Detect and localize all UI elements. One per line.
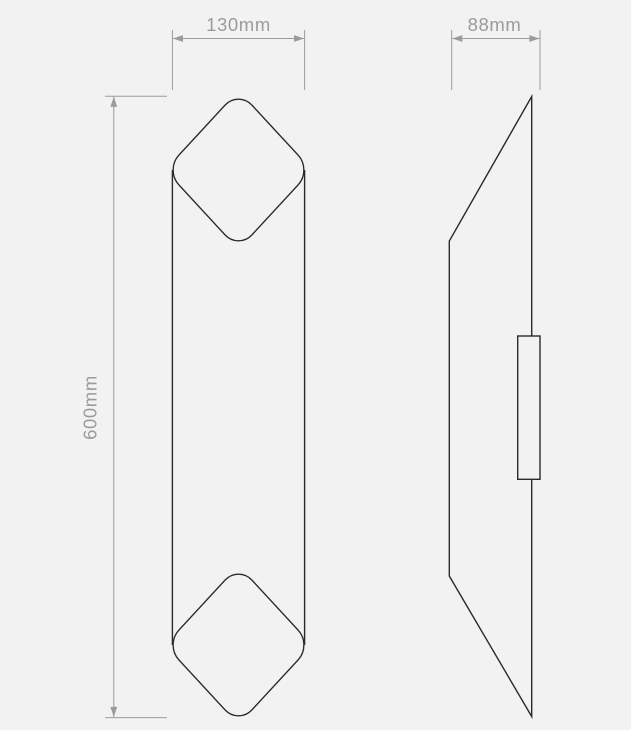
width-dimension-label: 130mm xyxy=(206,14,271,35)
depth-arrow-left-icon xyxy=(452,35,462,42)
front-bottom-diamond-diffuser xyxy=(165,566,312,725)
side-wall-bracket xyxy=(518,336,540,479)
front-view xyxy=(165,91,312,725)
height-dimension-label: 600mm xyxy=(80,375,101,440)
height-arrow-bottom-icon xyxy=(110,707,117,717)
height-dimension: 600mm xyxy=(80,96,168,717)
height-arrow-top-icon xyxy=(110,97,117,107)
width-arrow-right-icon xyxy=(294,35,304,42)
side-view xyxy=(449,97,540,717)
depth-arrow-right-icon xyxy=(529,35,539,42)
depth-dimension: 88mm xyxy=(452,14,540,90)
wall-light-dimension-diagram: 130mm 88mm 600mm xyxy=(0,0,631,730)
depth-dimension-label: 88mm xyxy=(468,14,522,35)
front-top-diamond-diffuser xyxy=(165,91,312,250)
technical-drawing-page: 130mm 88mm 600mm xyxy=(0,0,631,730)
width-arrow-left-icon xyxy=(173,35,183,42)
width-dimension: 130mm xyxy=(172,14,304,90)
